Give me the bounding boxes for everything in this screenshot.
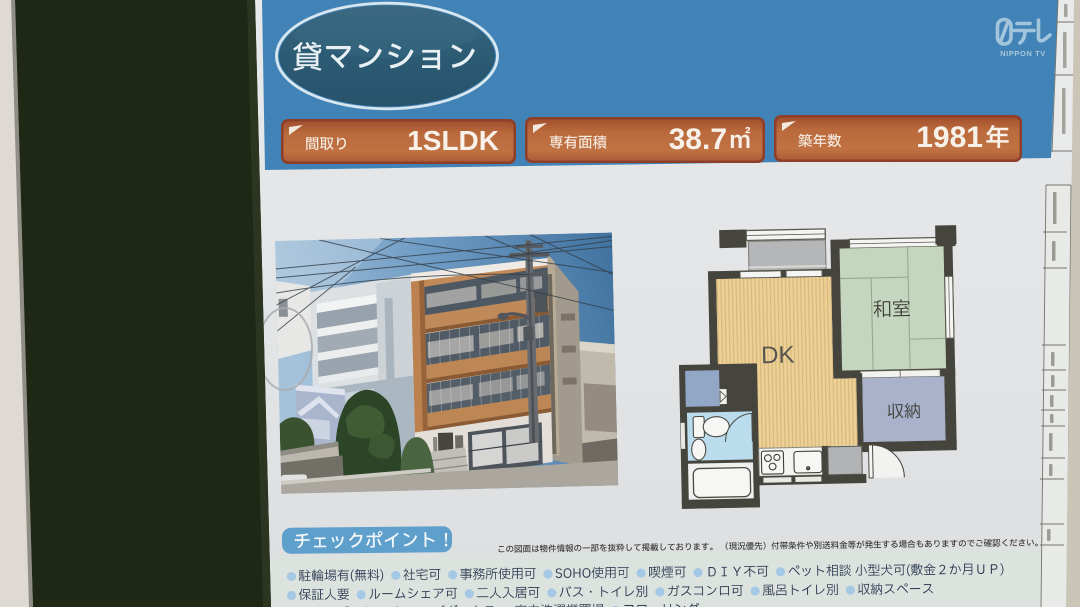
svg-text:DK: DK [761,342,795,370]
svg-text:NIPPON TV: NIPPON TV [1000,49,1046,58]
svg-text:1981: 1981 [916,121,983,154]
svg-text:38.7: 38.7 [669,123,727,156]
svg-text:1SLDK: 1SLDK [407,125,499,156]
